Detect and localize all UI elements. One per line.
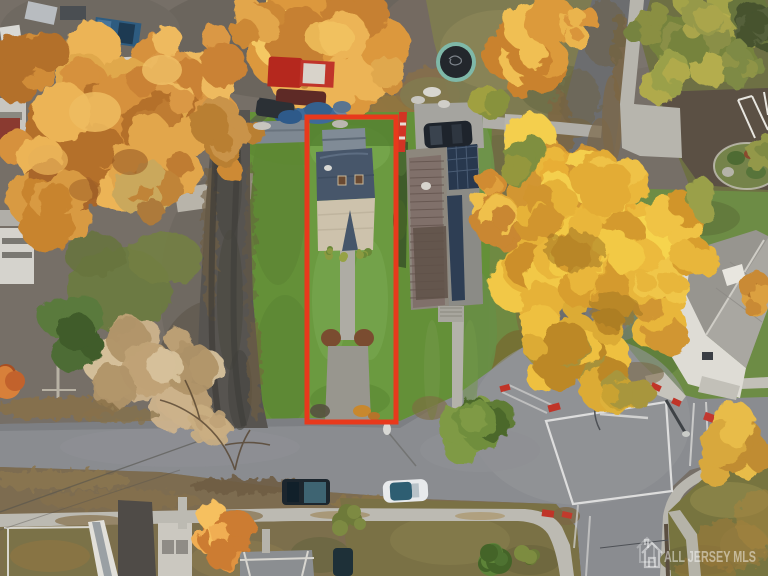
svg-text:ALL JERSEY MLS: ALL JERSEY MLS <box>664 549 756 566</box>
